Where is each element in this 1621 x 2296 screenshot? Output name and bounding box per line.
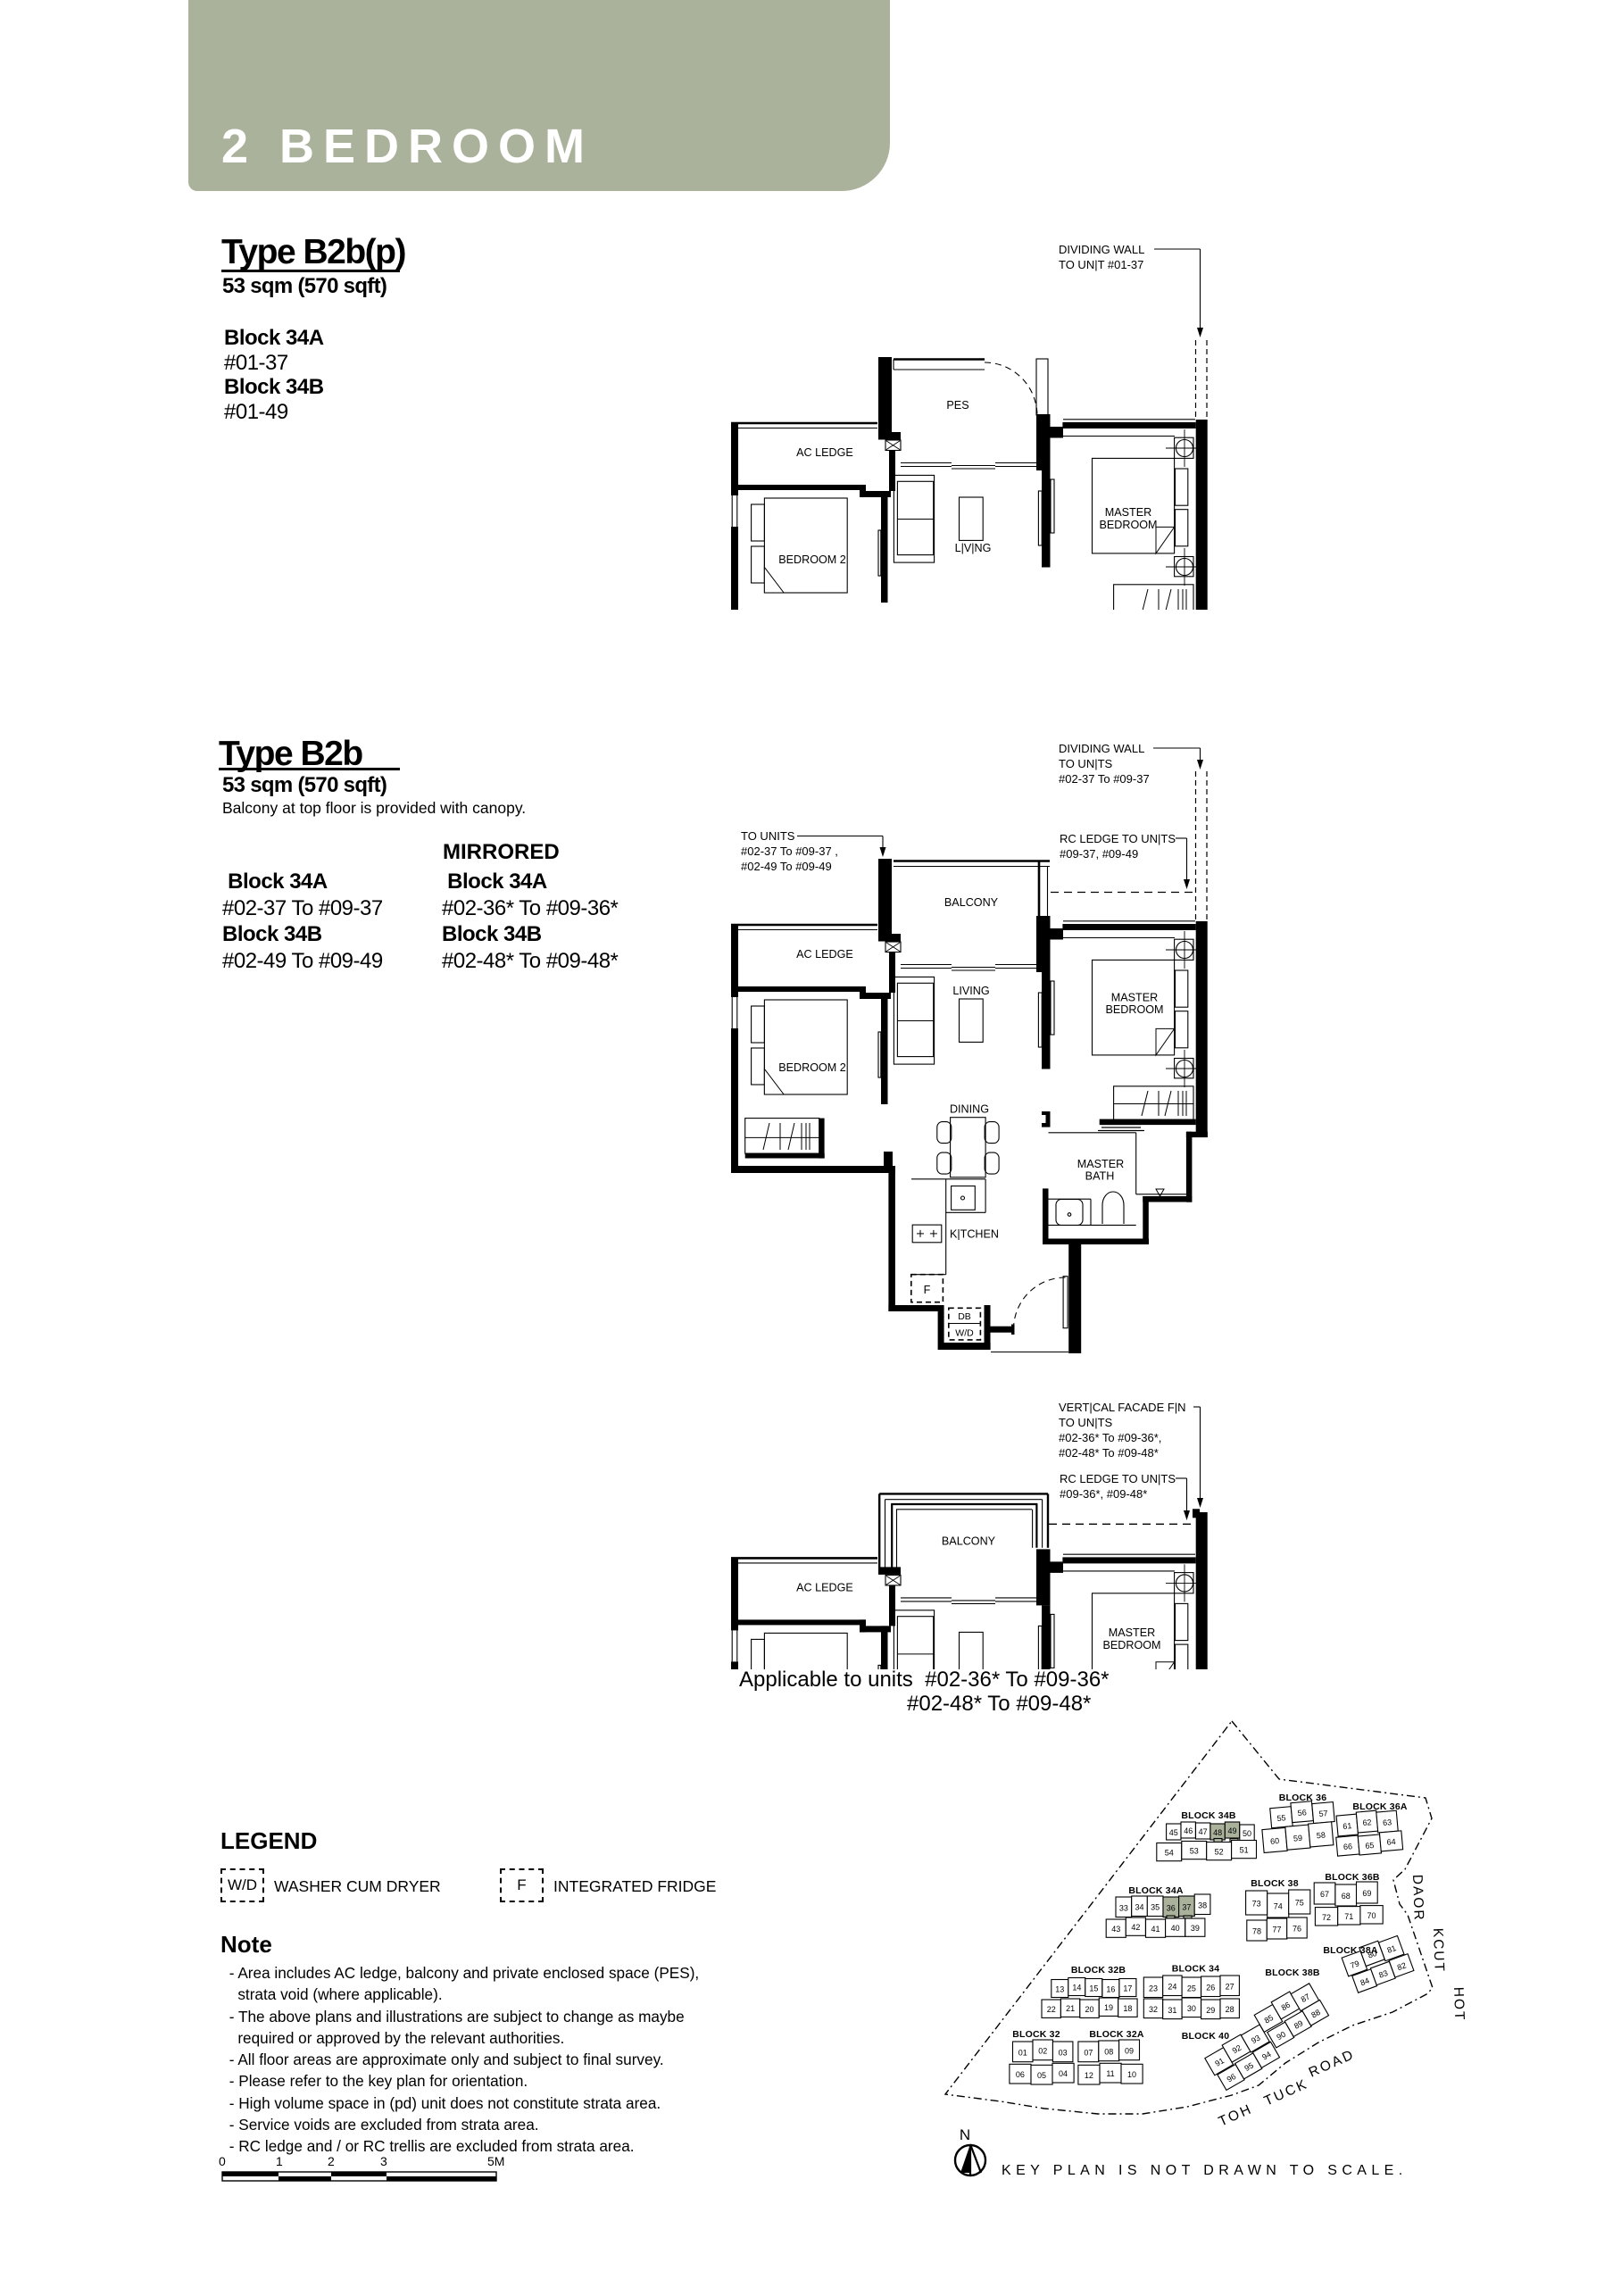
svg-text:61: 61	[1343, 1821, 1352, 1831]
svg-text:DIVIDING WALL: DIVIDING WALL	[1059, 742, 1144, 755]
svg-text:22: 22	[1047, 2005, 1056, 2014]
svg-text:41: 41	[1151, 1925, 1160, 1934]
svg-text:#09-36*, #09-48*: #09-36*, #09-48*	[1060, 1487, 1147, 1501]
svg-text:24: 24	[1168, 1982, 1176, 1991]
svg-text:08: 08	[1104, 2047, 1113, 2056]
svg-text:68: 68	[1342, 1892, 1351, 1901]
svg-text:67: 67	[1320, 1890, 1329, 1899]
svg-text:#09-37, #09-49: #09-37, #09-49	[1060, 847, 1138, 861]
svg-text:PES: PES	[946, 399, 968, 412]
svg-text:BEDROOM 2: BEDROOM 2	[778, 553, 846, 566]
svg-text:36: 36	[1167, 1903, 1176, 1912]
svg-text:23: 23	[1149, 1984, 1158, 1992]
svg-text:TO UN|TS: TO UN|TS	[1059, 757, 1113, 770]
svg-text:1: 1	[276, 2154, 283, 2168]
svg-text:42: 42	[1131, 1923, 1140, 1932]
svg-text:33: 33	[1119, 1903, 1128, 1912]
svg-text:5M: 5M	[487, 2154, 504, 2168]
svg-text:BEDROOM 2: BEDROOM 2	[778, 1694, 846, 1707]
svg-text:KCUT: KCUT	[1430, 1928, 1447, 1974]
svg-text:BLOCK 36: BLOCK 36	[1279, 1793, 1327, 1803]
svg-text:38: 38	[1198, 1901, 1207, 1909]
svg-text:02: 02	[1038, 2046, 1047, 2055]
svg-text:66: 66	[1343, 1842, 1353, 1851]
svg-text:DAOR: DAOR	[1409, 1875, 1426, 1922]
svg-text:32: 32	[1149, 2005, 1158, 2014]
svg-text:64: 64	[1386, 1837, 1396, 1847]
svg-text:13: 13	[1055, 1985, 1064, 1994]
svg-text:0: 0	[219, 2154, 226, 2168]
svg-text:72: 72	[1322, 1913, 1331, 1922]
svg-text:60: 60	[1270, 1836, 1280, 1846]
svg-text:TO UN|T #01-37: TO UN|T #01-37	[1059, 258, 1143, 271]
svg-text:54: 54	[1165, 1849, 1174, 1858]
svg-text:25: 25	[1187, 1984, 1196, 1992]
svg-text:07: 07	[1084, 2048, 1093, 2057]
svg-text:K|TCHEN: K|TCHEN	[950, 1228, 999, 1241]
svg-text:58: 58	[1316, 1830, 1326, 1840]
svg-text:BLOCK 34: BLOCK 34	[1172, 1964, 1220, 1975]
svg-text:BEDROOM 2: BEDROOM 2	[778, 1061, 846, 1074]
svg-text:20: 20	[1085, 2005, 1094, 2014]
svg-text:BLOCK 40: BLOCK 40	[1182, 2031, 1230, 2042]
svg-text:29: 29	[1206, 2006, 1215, 2015]
svg-text:21: 21	[1066, 2004, 1075, 2013]
svg-text:57: 57	[1318, 1809, 1328, 1818]
svg-text:17: 17	[1123, 1984, 1132, 1993]
svg-text:AC LEDGE: AC LEDGE	[796, 446, 853, 459]
svg-text:26: 26	[1206, 1983, 1215, 1992]
svg-text:78: 78	[1252, 1927, 1261, 1936]
svg-text:16: 16	[1106, 1985, 1115, 1994]
svg-text:BEDROOM: BEDROOM	[1099, 519, 1157, 531]
svg-text:37: 37	[1182, 1902, 1191, 1911]
svg-text:30: 30	[1187, 2004, 1196, 2013]
svg-text:50: 50	[1243, 1829, 1251, 1838]
svg-text:BLOCK 32A: BLOCK 32A	[1089, 2029, 1144, 2040]
svg-text:3: 3	[380, 2154, 387, 2168]
svg-text:46: 46	[1184, 1826, 1193, 1835]
svg-text:DIVIDING WALL: DIVIDING WALL	[1059, 243, 1144, 256]
svg-text:49: 49	[1228, 1826, 1237, 1835]
svg-text:53: 53	[1190, 1847, 1199, 1856]
svg-text:HOT: HOT	[1451, 1987, 1467, 2022]
svg-text:03: 03	[1059, 2048, 1068, 2057]
svg-text:TO UNITS: TO UNITS	[741, 829, 795, 843]
svg-text:14: 14	[1072, 1984, 1081, 1992]
svg-text:69: 69	[1362, 1889, 1371, 1898]
svg-text:BLOCK 36B: BLOCK 36B	[1325, 1872, 1380, 1883]
svg-text:L|V|NG: L|V|NG	[955, 542, 992, 554]
svg-text:56: 56	[1297, 1808, 1307, 1818]
svg-text:18: 18	[1123, 2004, 1132, 2013]
svg-text:BLOCK 38B: BLOCK 38B	[1265, 1967, 1320, 1978]
svg-text:39: 39	[1191, 1924, 1200, 1933]
svg-text:31: 31	[1168, 2006, 1176, 2015]
svg-text:#02-48* To #09-48*: #02-48* To #09-48*	[1059, 1446, 1159, 1460]
svg-text:74: 74	[1274, 1902, 1283, 1911]
svg-text:11: 11	[1106, 2069, 1114, 2078]
svg-text:RC LEDGE TO UN|TS: RC LEDGE TO UN|TS	[1060, 1472, 1176, 1485]
svg-text:48: 48	[1213, 1828, 1222, 1837]
svg-text:F: F	[924, 1284, 931, 1296]
svg-text:BLOCK 34A: BLOCK 34A	[1128, 1885, 1184, 1896]
svg-text:27: 27	[1226, 1982, 1234, 1991]
svg-text:BALCONY: BALCONY	[944, 896, 999, 909]
svg-text:LIVING: LIVING	[952, 985, 989, 997]
svg-text:KEY PLAN IS NOT DRAWN TO SCALE: KEY PLAN IS NOT DRAWN TO SCALE.	[1002, 2163, 1408, 2178]
svg-text:AC LEDGE: AC LEDGE	[796, 1581, 853, 1593]
svg-text:63: 63	[1383, 1818, 1392, 1827]
svg-text:RC LEDGE TO UN|TS: RC LEDGE TO UN|TS	[1060, 832, 1176, 845]
svg-text:19: 19	[1104, 2003, 1113, 2012]
svg-text:06: 06	[1016, 2070, 1025, 2079]
svg-text:52: 52	[1215, 1848, 1224, 1857]
svg-text:N: N	[960, 2126, 970, 2143]
svg-text:43: 43	[1111, 1925, 1120, 1934]
svg-text:71: 71	[1344, 1912, 1353, 1921]
svg-text:01: 01	[1018, 2048, 1027, 2057]
svg-text:BLOCK 34B: BLOCK 34B	[1181, 1810, 1236, 1821]
svg-text:45: 45	[1169, 1828, 1178, 1837]
svg-text:40: 40	[1171, 1924, 1180, 1933]
svg-text:BLOCK 32B: BLOCK 32B	[1071, 1965, 1126, 1976]
svg-text:#02-49 To #09-49: #02-49 To #09-49	[741, 860, 832, 873]
svg-text:W/D: W/D	[955, 1328, 974, 1339]
svg-text:73: 73	[1252, 1900, 1261, 1909]
svg-text:76: 76	[1293, 1925, 1301, 1934]
svg-text:TOH: TOH	[1217, 2101, 1255, 2130]
svg-text:51: 51	[1240, 1846, 1249, 1855]
svg-text:28: 28	[1226, 2005, 1234, 2014]
svg-text:#02-37 To #09-37: #02-37 To #09-37	[1059, 772, 1150, 786]
svg-text:BLOCK 32: BLOCK 32	[1012, 2029, 1060, 2040]
svg-text:MASTER: MASTER	[1077, 1158, 1124, 1170]
svg-text:DB: DB	[958, 1311, 971, 1322]
svg-text:BEDROOM: BEDROOM	[1105, 1003, 1163, 1016]
svg-text:MASTER: MASTER	[1111, 992, 1158, 1004]
svg-text:TUCK: TUCK	[1262, 2076, 1311, 2109]
svg-text:77: 77	[1272, 1926, 1281, 1934]
svg-text:TO UN|TS: TO UN|TS	[1059, 1416, 1113, 1429]
svg-text:34: 34	[1135, 1902, 1143, 1911]
svg-text:05: 05	[1037, 2071, 1046, 2080]
svg-text:#02-37 To #09-37 ,: #02-37 To #09-37 ,	[741, 844, 838, 858]
svg-text:47: 47	[1199, 1827, 1208, 1836]
svg-text:BATH: BATH	[1085, 1170, 1115, 1183]
svg-text:BEDROOM: BEDROOM	[1102, 1639, 1160, 1651]
svg-text:MASTER: MASTER	[1105, 506, 1151, 519]
svg-text:ROAD: ROAD	[1307, 2047, 1358, 2081]
svg-text:10: 10	[1127, 2070, 1136, 2079]
svg-text:70: 70	[1367, 1911, 1376, 1920]
svg-text:65: 65	[1365, 1841, 1375, 1851]
svg-text:04: 04	[1059, 2069, 1068, 2078]
svg-text:2: 2	[328, 2154, 335, 2168]
svg-text:15: 15	[1089, 1984, 1098, 1993]
svg-text:BLOCK 38: BLOCK 38	[1251, 1878, 1299, 1889]
svg-text:09: 09	[1125, 2046, 1134, 2055]
svg-text:12: 12	[1085, 2071, 1093, 2080]
svg-text:DINING: DINING	[950, 1103, 989, 1116]
svg-text:59: 59	[1293, 1834, 1303, 1843]
svg-text:35: 35	[1151, 1902, 1160, 1911]
svg-text:VERT|CAL FACADE F|N: VERT|CAL FACADE F|N	[1059, 1401, 1186, 1414]
svg-text:75: 75	[1295, 1899, 1304, 1908]
svg-text:BLOCK 36A: BLOCK 36A	[1352, 1801, 1408, 1812]
svg-text:MASTER: MASTER	[1109, 1626, 1155, 1639]
svg-text:62: 62	[1362, 1818, 1372, 1827]
svg-text:BLOCK 38A: BLOCK 38A	[1323, 1945, 1378, 1956]
svg-text:55: 55	[1276, 1813, 1286, 1823]
svg-text:AC LEDGE: AC LEDGE	[796, 948, 853, 961]
svg-text:BALCONY: BALCONY	[942, 1535, 996, 1547]
svg-text:#02-36* To #09-36*,: #02-36* To #09-36*,	[1059, 1431, 1161, 1444]
